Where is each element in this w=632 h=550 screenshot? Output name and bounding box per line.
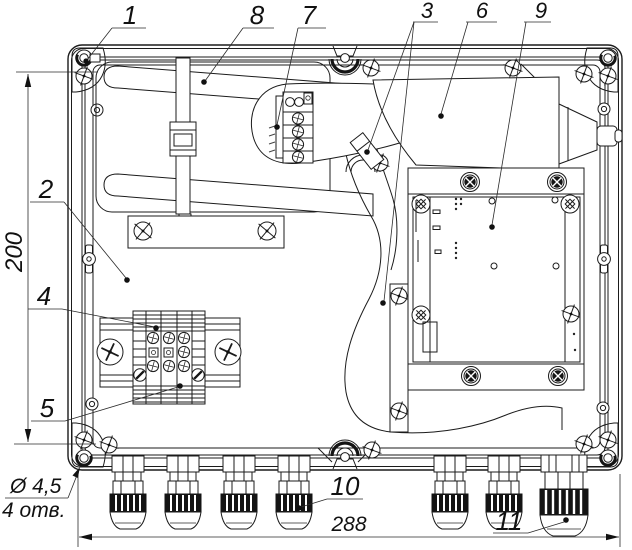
callout-5-label: 5 <box>40 393 55 423</box>
callout-7-label: 7 <box>302 0 318 30</box>
callout-2-label: 2 <box>38 174 54 204</box>
dim-width-label: 288 <box>330 513 366 536</box>
callout-9-label: 9 <box>535 0 547 23</box>
callout-8-label: 8 <box>250 0 265 30</box>
callout-6-label: 6 <box>476 0 489 23</box>
callout-10-label: 10 <box>331 471 360 501</box>
technical-drawing: 200 288 Ø 4,5 4 отв. 1 8 7 3 <box>0 0 632 550</box>
callout-1-label: 1 <box>123 0 137 30</box>
bracket-lower-arm <box>104 174 373 216</box>
hole-note: Ø 4,5 4 отв. <box>2 467 80 522</box>
gusset-line <box>521 64 536 79</box>
hole-count-label: 4 отв. <box>2 499 65 522</box>
corner-bracket-top-left <box>71 48 105 92</box>
callout-4-label: 4 <box>37 281 51 311</box>
hole-diameter-label: Ø 4,5 <box>9 475 62 498</box>
corner-bracket-bottom-left <box>71 423 105 467</box>
dim-height-label: 200 <box>1 231 28 273</box>
modem-unit <box>373 77 622 170</box>
callout-3-label: 3 <box>421 0 434 23</box>
lid-clip <box>90 54 100 62</box>
callout-8: 8 <box>201 0 274 85</box>
antenna-connector <box>559 104 622 164</box>
callout-11-label: 11 <box>496 506 523 536</box>
enclosure-internal-view-drawing: 200 288 Ø 4,5 4 отв. 1 8 7 3 <box>0 0 632 550</box>
